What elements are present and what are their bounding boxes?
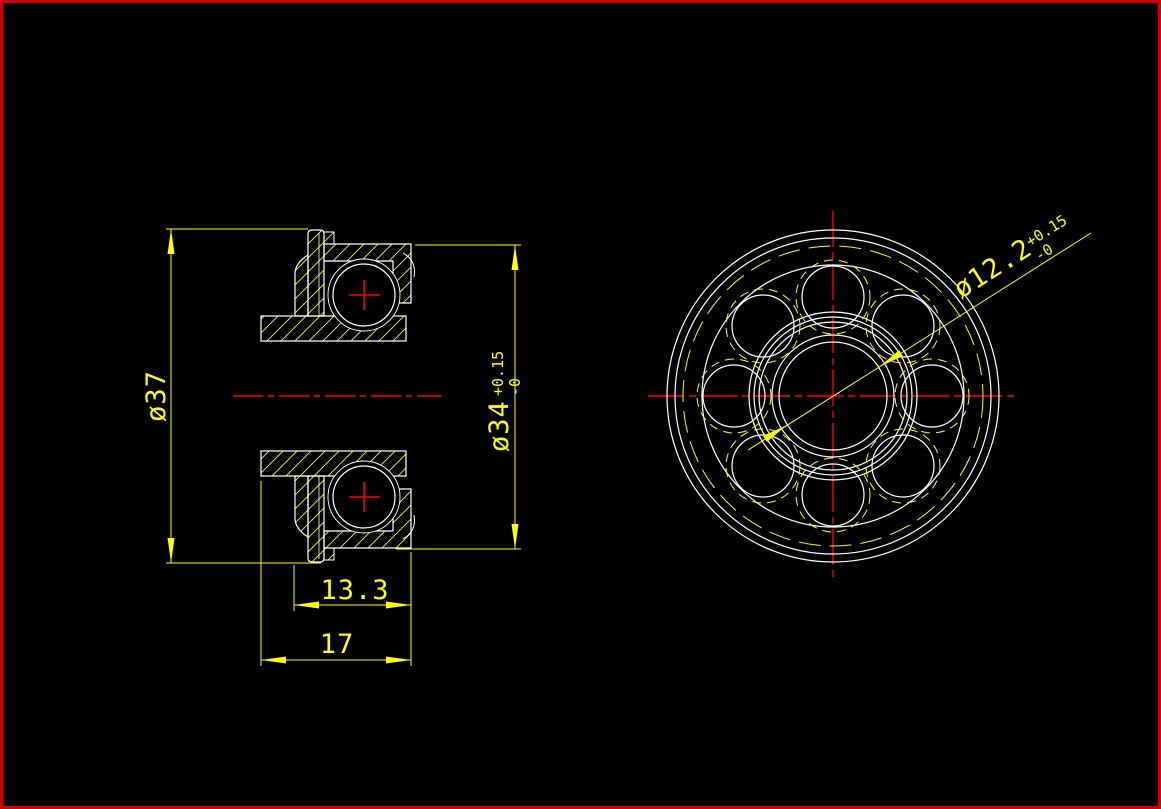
flange-diameter-dim-label: ø37 xyxy=(141,370,172,422)
flange-top-strip xyxy=(308,230,324,316)
bearing-drawing: ø37 ø34 +0.15 -0 13.3 17 xyxy=(3,3,1161,809)
cad-viewport[interactable]: ø37 ø34 +0.15 -0 13.3 17 xyxy=(0,0,1161,809)
flange-top-hook xyxy=(295,255,308,316)
flange-bottom-lip xyxy=(324,548,334,560)
front-view: ø12.2 +0.15 -0 xyxy=(648,203,1091,581)
section-view: ø37 ø34 +0.15 -0 13.3 17 xyxy=(141,229,524,666)
flange-bottom-hook xyxy=(295,476,308,537)
bore-diameter-dim-label: ø12.2 +0.15 -0 xyxy=(948,203,1087,310)
bore-dim-leader xyxy=(748,233,1091,450)
outer-diameter-dim-label: ø34 +0.15 -0 xyxy=(484,341,524,452)
total-width-dim-label: 17 xyxy=(320,629,355,660)
flange-top-lip xyxy=(324,232,334,244)
inner-width-dim-label: 13.3 xyxy=(320,575,389,606)
flange-bottom-strip xyxy=(308,476,324,562)
